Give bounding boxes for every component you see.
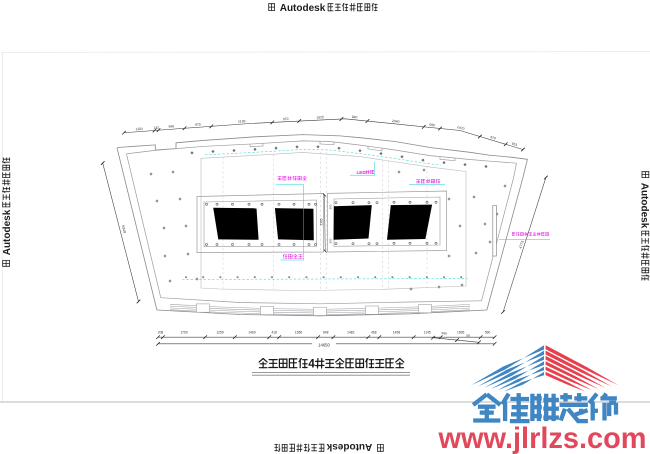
svg-text:Autodesk: Autodesk xyxy=(280,3,326,14)
svg-text:1458: 1458 xyxy=(393,331,401,335)
svg-text:970: 970 xyxy=(283,117,289,121)
svg-text:1790: 1790 xyxy=(180,331,188,335)
svg-text:1525: 1525 xyxy=(316,115,324,119)
svg-text:Autodesk: Autodesk xyxy=(639,183,650,229)
svg-text:1259: 1259 xyxy=(216,331,224,335)
svg-text:2199: 2199 xyxy=(238,119,246,124)
svg-text:468: 468 xyxy=(371,331,377,335)
svg-text:590: 590 xyxy=(429,123,435,128)
svg-text:142: 142 xyxy=(153,125,159,129)
svg-text:590: 590 xyxy=(485,331,491,335)
svg-text:1695: 1695 xyxy=(457,331,465,335)
svg-text:940: 940 xyxy=(168,124,174,128)
svg-text:1460: 1460 xyxy=(248,331,256,335)
svg-text:970: 970 xyxy=(195,122,201,126)
svg-text:1482: 1482 xyxy=(347,331,355,335)
svg-text:968: 968 xyxy=(441,331,447,336)
svg-text:300: 300 xyxy=(328,238,332,243)
svg-text:940: 940 xyxy=(352,115,358,120)
svg-text:300: 300 xyxy=(328,204,332,209)
svg-text:648: 648 xyxy=(323,331,329,335)
svg-text:Autodesk: Autodesk xyxy=(2,209,13,255)
svg-text:2040: 2040 xyxy=(392,119,400,124)
svg-text:www.jlrlzs.com: www.jlrlzs.com xyxy=(438,422,647,454)
svg-text:1145: 1145 xyxy=(424,331,431,335)
svg-text:58: 58 xyxy=(466,333,470,337)
svg-text:3365: 3365 xyxy=(319,218,323,225)
svg-text:418: 418 xyxy=(271,331,277,335)
svg-text:14650: 14650 xyxy=(318,342,330,347)
svg-text:1104: 1104 xyxy=(135,127,143,132)
svg-text:LED: LED xyxy=(357,170,367,175)
svg-text:1650: 1650 xyxy=(295,331,303,335)
svg-text:208: 208 xyxy=(158,331,164,335)
svg-text:4: 4 xyxy=(308,357,315,371)
svg-text:Autodesk: Autodesk xyxy=(326,441,372,452)
